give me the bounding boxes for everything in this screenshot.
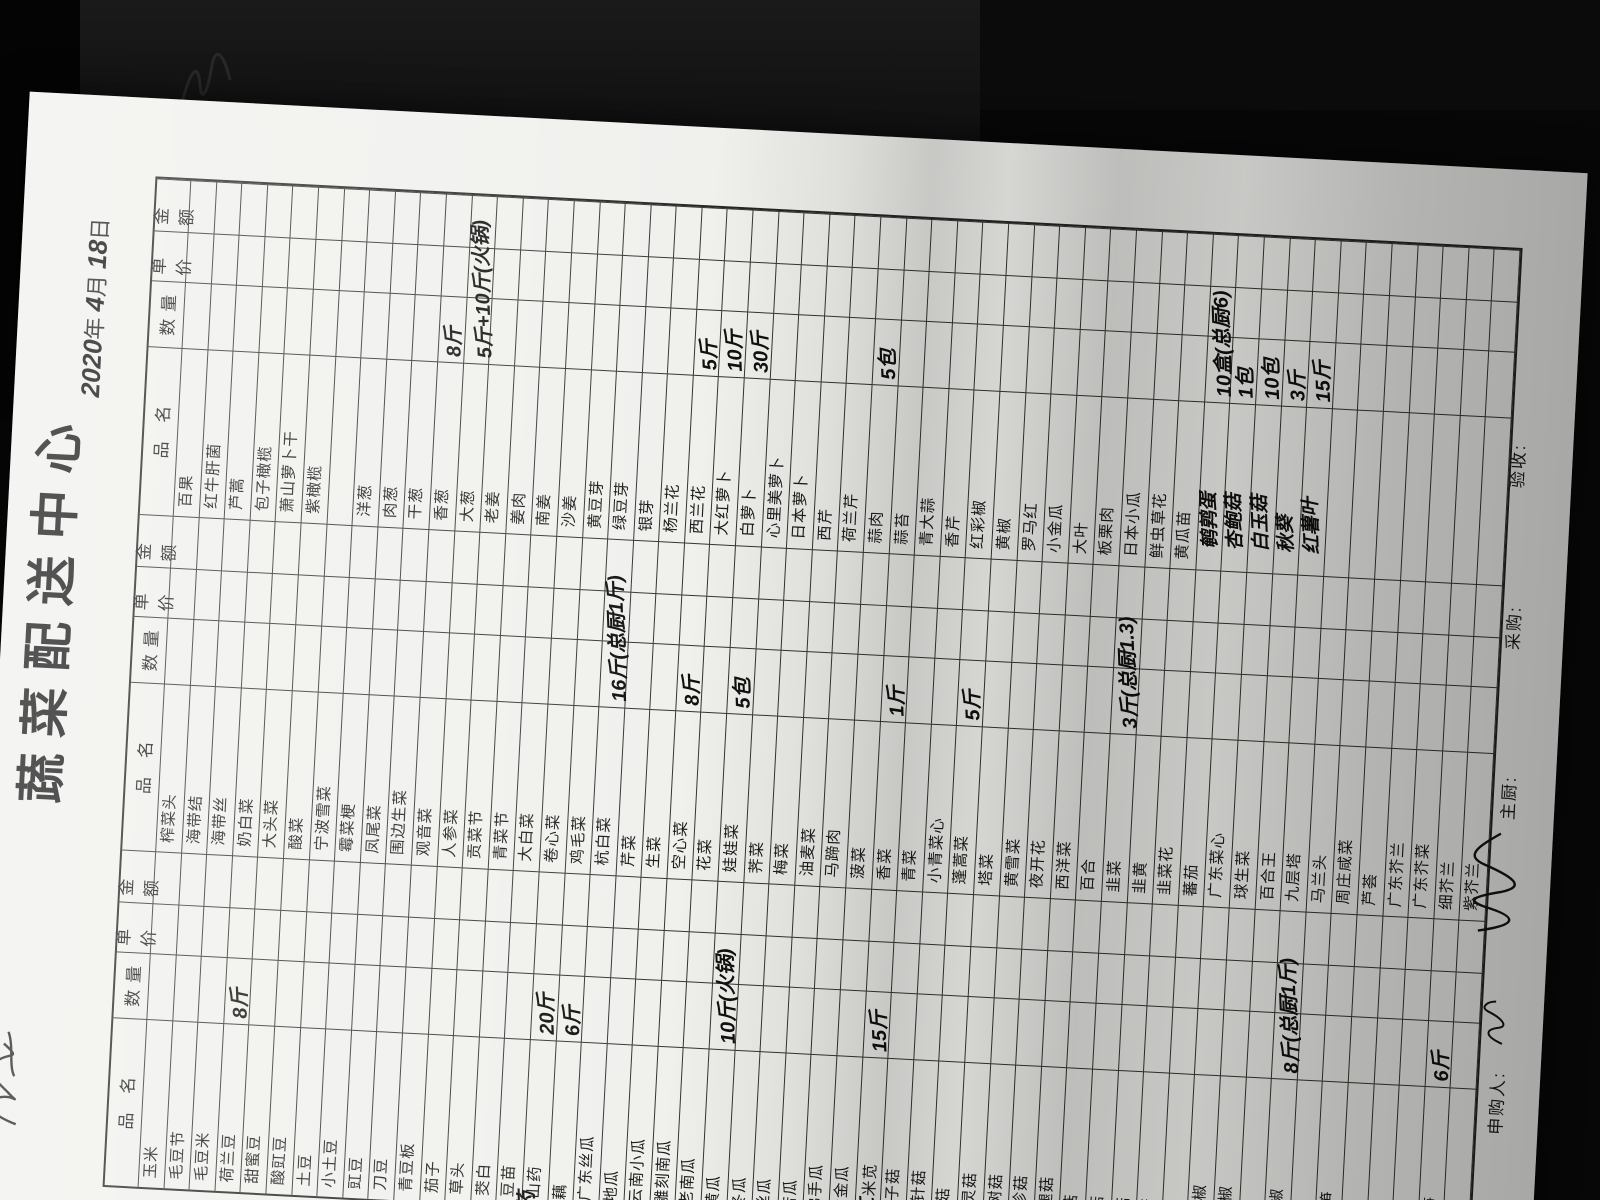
applicant-label: 申购人: (1481, 1070, 1509, 1135)
amount-cell (1492, 249, 1520, 302)
quantity-cell (829, 652, 858, 719)
quantity-cell (523, 636, 552, 703)
amount-cell (1467, 247, 1495, 300)
amount-cell (853, 215, 881, 268)
header-qty: 数量 (149, 280, 186, 348)
unit-price-cell (815, 938, 843, 989)
amount-cell (1355, 914, 1383, 967)
quantity-cell (607, 977, 636, 1044)
unit-price-cell (927, 271, 955, 322)
quantity-cell (1060, 664, 1089, 731)
amount-cell (521, 198, 549, 251)
amount-cell (981, 222, 1009, 275)
quantity-cell (1221, 1009, 1250, 1076)
quantity-cell (344, 627, 373, 694)
unit-price-cell (1216, 623, 1244, 674)
amount-cell (955, 220, 983, 273)
unit-price-cell (1311, 291, 1339, 342)
unit-price-cell (986, 611, 1014, 662)
quantity-cell (515, 299, 544, 366)
amount-cell (639, 877, 667, 930)
quantity-cell (906, 656, 935, 723)
amount-cell (281, 858, 309, 911)
quantity-cell (1392, 682, 1421, 749)
unit-price-cell (1267, 625, 1295, 676)
amount-cell (562, 873, 590, 926)
quantity-cell (574, 639, 603, 706)
amount-cell (248, 520, 276, 573)
amount-cell (230, 855, 258, 908)
unit-price-cell (1081, 279, 1109, 330)
quantity-cell (1170, 1007, 1199, 1074)
unit-price-cell (373, 578, 401, 629)
unit-price-cell (355, 914, 383, 965)
amount-cell (1245, 572, 1273, 625)
amount-cell (478, 532, 506, 585)
amount-cell (273, 521, 301, 574)
background-surface-right (980, 0, 1600, 110)
amount-cell (912, 555, 940, 608)
amount-cell (1150, 904, 1178, 957)
amount-cell (1390, 243, 1418, 296)
unit-price-cell (1020, 949, 1048, 1000)
quantity-cell: 1斤 (881, 655, 910, 722)
unit-price-cell (220, 570, 248, 621)
unit-price-cell (1029, 276, 1057, 327)
amount-cell (435, 866, 463, 919)
unit-price-cell (194, 569, 222, 620)
unit-price-cell (569, 252, 597, 303)
unit-price-cell (1122, 954, 1150, 1005)
unit-price-cell (1259, 288, 1287, 339)
quantity-cell (566, 302, 595, 369)
amount-cell (776, 211, 804, 264)
quantity-cell (786, 987, 815, 1054)
quantity-cell (1154, 333, 1183, 400)
amount-cell (503, 533, 531, 586)
unit-price-cell (1234, 287, 1262, 338)
quantity-cell (1042, 1000, 1071, 1067)
quantity-cell (377, 965, 406, 1032)
unit-price-cell (1242, 624, 1270, 675)
amount-cell (307, 859, 335, 912)
amount-cell (784, 548, 812, 601)
unit-price-cell (1344, 629, 1372, 680)
unit-price-cell (1362, 294, 1390, 345)
head-chef-label: 主厨: (1494, 775, 1521, 821)
amount-cell (409, 865, 437, 918)
amount-cell (1329, 913, 1357, 966)
amount-cell (1431, 918, 1459, 971)
quantity-cell: 8斤(总厨1斤) (1272, 1012, 1301, 1079)
quantity-cell (965, 996, 994, 1063)
unit-price-cell (202, 906, 230, 957)
amount-cell (460, 867, 488, 920)
unit-price-cell (1045, 950, 1073, 1001)
quantity-cell (633, 979, 662, 1046)
quantity-cell (778, 650, 807, 717)
quantity-cell (352, 964, 381, 1031)
quantity-cell (301, 961, 330, 1028)
quantity-cell (1162, 670, 1191, 737)
unit-price-cell (978, 274, 1006, 325)
unit-price-cell (186, 232, 214, 283)
quantity-cell (1366, 681, 1395, 748)
amount-cell (1014, 560, 1042, 613)
quantity-cell (1460, 349, 1489, 416)
unit-price-cell (534, 923, 562, 974)
quantity-cell (310, 289, 339, 356)
amount-cell (1193, 569, 1221, 622)
amount-cell (623, 203, 651, 256)
unit-price-cell (151, 903, 179, 954)
amount-cell (725, 208, 753, 261)
amount-cell (1219, 571, 1247, 624)
amount-cell (588, 874, 616, 927)
amount-cell (1211, 234, 1239, 287)
amount-cell (1288, 238, 1316, 291)
quantity-cell: 5斤 (957, 659, 986, 726)
amount-cell (1347, 577, 1375, 630)
amount-cell (358, 862, 386, 915)
quantity-cell (285, 287, 314, 354)
unit-price-cell (245, 572, 273, 623)
unit-price-cell (723, 260, 751, 311)
amount-cell (844, 887, 872, 940)
unit-price-cell (416, 244, 444, 295)
unit-price-cell (1071, 951, 1099, 1002)
date-year-suffix: 年 (82, 317, 108, 340)
amount-cell (316, 187, 344, 240)
amount-cell (1099, 901, 1127, 954)
amount-cell (1252, 909, 1280, 962)
unit-price-cell (304, 911, 332, 962)
amount-cell (1313, 239, 1341, 292)
unit-price-cell (168, 568, 196, 619)
header-qty: 数量 (113, 951, 150, 1019)
unit-price-cell (961, 609, 989, 660)
quantity-cell (898, 320, 927, 387)
unit-price-cell (799, 264, 827, 315)
unit-price-cell (833, 602, 861, 653)
unit-price-cell (756, 598, 784, 649)
amount-cell (828, 214, 856, 267)
unit-price-cell (475, 584, 503, 635)
unit-price-cell (390, 243, 418, 294)
amount-cell (1321, 576, 1349, 629)
amount-cell (265, 184, 293, 237)
quantity-cell: 15斤 (1307, 341, 1336, 408)
amount-cell (291, 186, 319, 239)
unit-price-cell (1387, 295, 1415, 346)
amount-cell (1066, 563, 1094, 616)
order-table: 品 名数量单价金 额品 名数量单价金 额品 名数量单价金 额玉米榨菜头百果毛豆节… (103, 176, 1523, 1200)
amount-cell (1176, 905, 1204, 958)
unit-price-cell (672, 258, 700, 309)
amount-cell (1091, 564, 1119, 617)
unit-price-cell (1097, 953, 1125, 1004)
amount-cell (1398, 580, 1426, 633)
unit-price-cell (1012, 612, 1040, 663)
quantity-cell (361, 291, 390, 358)
quantity-cell (1093, 1003, 1122, 1070)
unit-price-cell (585, 926, 613, 977)
amount-cell (1441, 246, 1469, 299)
unit-price-cell (544, 251, 572, 302)
quantity-cell (591, 303, 620, 370)
quantity-cell (1103, 330, 1132, 397)
amount-cell (920, 891, 948, 944)
amount-cell (1227, 908, 1255, 961)
quantity-cell (1008, 662, 1037, 729)
unit-price-cell (1285, 290, 1313, 341)
unit-price-cell (406, 917, 434, 968)
header-qty: 数量 (131, 616, 168, 684)
amount-cell (904, 218, 932, 271)
unit-price-cell (1148, 955, 1176, 1006)
quantity-cell (1067, 1001, 1096, 1068)
quantity-cell (643, 306, 672, 373)
unit-price-cell (1301, 963, 1329, 1014)
quantity-cell (983, 660, 1012, 727)
quantity-cell (336, 290, 365, 357)
unit-price-cell (841, 939, 869, 990)
unit-price-cell (1037, 613, 1065, 664)
quantity-cell (421, 631, 450, 698)
unit-price-cell (705, 596, 733, 647)
amount-cell (716, 881, 744, 934)
purchase-label: 采购: (1499, 605, 1526, 651)
unit-price-cell (1132, 282, 1160, 333)
quantity-cell (617, 305, 646, 372)
amount-cell (938, 556, 966, 609)
unit-price-cell (910, 607, 938, 658)
quantity-cell (761, 985, 790, 1052)
quantity-cell (1144, 1005, 1173, 1072)
unit-price-cell (1403, 969, 1431, 1020)
amount-cell (708, 544, 736, 597)
quantity-cell (259, 286, 288, 353)
quantity-cell: 3斤(总厨1.3) (1111, 667, 1140, 734)
unit-price-cell (432, 918, 460, 969)
amount-cell (631, 540, 659, 593)
unit-price-cell (271, 573, 299, 624)
quantity-cell: 8斤 (438, 295, 467, 362)
unit-price-cell (518, 250, 546, 301)
unit-price-cell (892, 942, 920, 993)
unit-price-cell (365, 242, 393, 293)
unit-price-cell (969, 946, 997, 997)
amount-cell (393, 191, 421, 244)
quantity-cell (191, 619, 220, 686)
quantity-cell (1443, 685, 1472, 752)
amount-cell (759, 547, 787, 600)
quantity-cell (684, 981, 713, 1048)
unit-price-cell (347, 577, 375, 628)
amount-cell (971, 894, 999, 947)
amount-cell (1449, 583, 1477, 636)
unit-price-cell (237, 235, 265, 286)
unit-price-cell (1319, 628, 1347, 679)
amount-cell (368, 190, 396, 243)
header-amount: 金 额 (119, 849, 156, 903)
unit-price-cell (902, 270, 930, 321)
quantity-cell (796, 314, 825, 381)
quantity-cell (770, 313, 799, 380)
margin-note-handwritten: 铁棍山药 (510, 1191, 540, 1200)
quantity-cell (1290, 677, 1319, 744)
header-amount: 金 额 (155, 178, 192, 232)
amount-cell (342, 188, 370, 241)
unit-price-cell (212, 233, 240, 284)
amount-cell (802, 212, 830, 265)
amount-cell (674, 206, 702, 259)
quantity-cell (497, 635, 526, 702)
quantity-cell (480, 971, 509, 1038)
date-year: 2020 (75, 339, 108, 398)
amount-cell (1262, 236, 1290, 289)
amount-cell (1058, 226, 1086, 279)
quantity-cell (1435, 348, 1464, 415)
unit-price-cell (731, 597, 759, 648)
unit-price-cell (621, 255, 649, 306)
amount-cell (1296, 575, 1324, 628)
unit-price-cell (953, 272, 981, 323)
quantity-cell (1349, 1016, 1378, 1083)
quantity-cell (1374, 1017, 1403, 1084)
quantity-cell: 15斤 (863, 991, 892, 1058)
amount-cell (1423, 581, 1451, 634)
unit-price-cell (807, 601, 835, 652)
unit-price-cell (330, 913, 358, 964)
unit-price-cell (1421, 633, 1449, 684)
header-price: 单价 (152, 230, 189, 282)
quantity-cell (472, 634, 501, 701)
quantity-cell (812, 988, 841, 1055)
unit-price-cell (1429, 970, 1457, 1021)
amount-cell (572, 200, 600, 253)
quantity-cell (949, 322, 978, 389)
unit-price-cell (825, 266, 853, 317)
header-amount: 金 额 (137, 514, 174, 568)
quantity-cell (429, 968, 458, 1035)
amount-cell (810, 549, 838, 602)
unit-price-cell (526, 586, 554, 637)
unit-price-cell (774, 263, 802, 314)
amount-cell (751, 210, 779, 263)
unit-price-cell (1224, 959, 1252, 1010)
quantity-cell (1417, 683, 1446, 750)
amount-cell (299, 522, 327, 575)
amount-cell (989, 559, 1017, 612)
amount-cell (946, 893, 974, 946)
amount-cell (887, 553, 915, 606)
amount-cell (1339, 240, 1367, 293)
applicant-signature-squiggle (1476, 997, 1513, 1049)
unit-price-cell (764, 935, 792, 986)
amount-cell (1142, 567, 1170, 620)
amount-cell (427, 529, 455, 582)
quantity-cell (326, 963, 355, 1030)
unit-price-cell (866, 941, 894, 992)
unit-price-cell (884, 605, 912, 656)
unit-price-cell (253, 909, 281, 960)
amount-cell (1185, 232, 1213, 285)
amount-cell (1415, 244, 1443, 297)
amount-cell (197, 517, 225, 570)
quantity-cell (1341, 679, 1370, 746)
unit-price-cell (1438, 298, 1466, 349)
amount-cell (1380, 916, 1408, 969)
amount-cell (861, 552, 889, 605)
unit-price-cell (859, 604, 887, 655)
unit-price-cell (851, 267, 879, 318)
quantity-cell (914, 993, 943, 1060)
unit-price-cell (1327, 965, 1355, 1016)
quantity-cell: 8斤 (224, 957, 253, 1024)
quantity-cell (147, 953, 176, 1020)
quantity-cell: 30斤 (745, 312, 774, 379)
unit-price-cell (339, 240, 367, 291)
amount-cell (682, 543, 710, 596)
unit-price-cell (876, 268, 904, 319)
amount-cell (818, 886, 846, 939)
quantity-cell (234, 285, 263, 352)
quantity-cell (1016, 999, 1045, 1066)
quantity-cell (1323, 1015, 1352, 1082)
amount-cell (222, 518, 250, 571)
unit-price-cell (1336, 292, 1364, 343)
unit-price-cell (176, 905, 204, 956)
inspect-label: 验收: (1503, 443, 1530, 489)
quantity-cell (1026, 326, 1055, 393)
unit-price-cell (1165, 620, 1193, 671)
unit-price-cell (782, 600, 810, 651)
amount-cell (879, 216, 907, 269)
amount-cell (1032, 224, 1060, 277)
quantity-cell: 10斤(火锅) (710, 983, 739, 1050)
amount-cell (554, 536, 582, 589)
unit-price-cell (1199, 958, 1227, 1009)
amount-cell (1237, 235, 1265, 288)
unit-price-cell (501, 585, 529, 636)
unit-price-cell (1446, 635, 1474, 686)
unit-price-cell (1413, 296, 1441, 347)
quantity-cell: 5包 (727, 647, 756, 714)
quantity-cell (1000, 325, 1029, 392)
quantity-cell (242, 622, 271, 689)
unit-price-cell (1157, 283, 1185, 334)
quantity-cell (1264, 675, 1293, 742)
unit-price-cell (918, 943, 946, 994)
amount-cell (700, 207, 728, 260)
amount-cell (1160, 231, 1188, 284)
amount-cell (1022, 897, 1050, 950)
unit-price-cell (1352, 966, 1380, 1017)
unit-price-cell (935, 608, 963, 659)
date-day-suffix: 日 (87, 217, 113, 240)
amount-cell (930, 219, 958, 272)
amount-cell (598, 202, 626, 255)
quantity-cell (1119, 1004, 1148, 1071)
quantity-cell: 5斤+10斤(火锅) (464, 297, 493, 364)
amount-cell (1134, 230, 1162, 283)
chef-signature-squiggle (1462, 824, 1532, 939)
quantity-cell (208, 283, 237, 350)
amount-cell (895, 890, 923, 943)
unit-price-cell (994, 947, 1022, 998)
unit-price-cell (1464, 299, 1492, 350)
